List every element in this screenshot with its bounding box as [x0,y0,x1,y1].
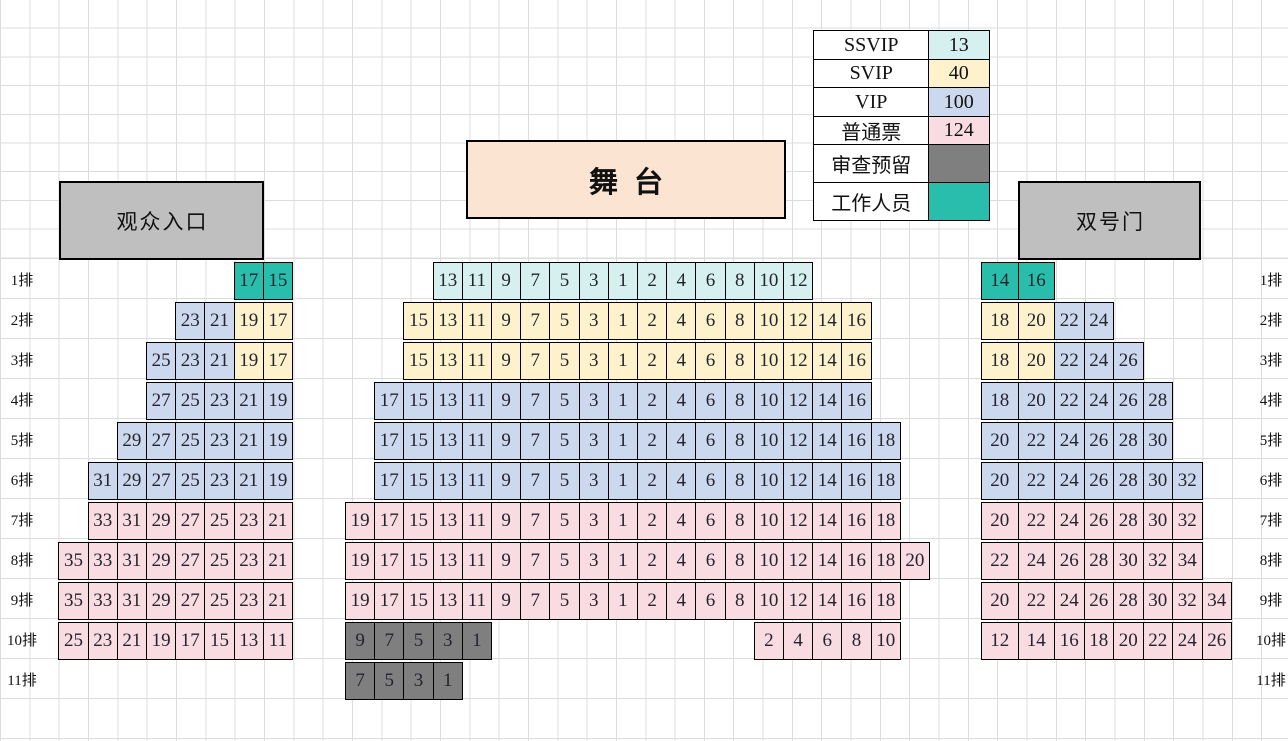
seat[interactable]: 16 [841,382,871,420]
seat[interactable]: 4 [666,342,696,380]
seat[interactable]: 17 [175,622,205,660]
seat[interactable]: 3 [579,382,609,420]
seat[interactable]: 1 [608,302,638,340]
legend-tier-count: 40 [928,59,990,89]
seat[interactable]: 35 [58,542,88,580]
seat[interactable]: 16 [841,422,871,460]
seat[interactable]: 18 [871,462,901,500]
seat[interactable]: 22 [981,542,1019,580]
seat[interactable]: 19 [345,502,375,540]
seat[interactable]: 16 [841,502,871,540]
seat[interactable]: 5 [549,462,579,500]
seat[interactable]: 20 [981,422,1019,460]
seat[interactable]: 9 [491,382,521,420]
seat[interactable]: 29 [146,542,176,580]
seat[interactable]: 20 [1113,622,1144,660]
legend-row: 工作人员 [813,182,990,221]
seat[interactable]: 15 [403,462,433,500]
seat[interactable]: 25 [175,422,205,460]
seat[interactable]: 7 [374,622,404,660]
seat[interactable]: 31 [88,462,118,500]
seat[interactable]: 13 [234,622,264,660]
seat[interactable]: 19 [234,302,264,340]
seat[interactable]: 19 [345,542,375,580]
seat[interactable]: 9 [491,462,521,500]
seat[interactable]: 16 [1018,262,1056,300]
seat[interactable]: 14 [812,422,842,460]
seat[interactable]: 12 [783,422,813,460]
seat[interactable]: 10 [754,342,784,380]
seat[interactable]: 16 [841,542,871,580]
seat[interactable]: 25 [146,342,176,380]
seat[interactable]: 6 [695,462,725,500]
seat[interactable]: 25 [204,582,234,620]
seat[interactable]: 3 [579,302,609,340]
seat[interactable]: 22 [1018,462,1056,500]
seat[interactable]: 15 [403,542,433,580]
seat[interactable]: 29 [117,462,147,500]
seat[interactable]: 12 [783,462,813,500]
seat[interactable]: 8 [725,302,755,340]
seat[interactable]: 15 [403,502,433,540]
seat[interactable]: 10 [754,502,784,540]
seat[interactable]: 24 [1054,422,1085,460]
seat[interactable]: 2 [637,422,667,460]
seat[interactable]: 28 [1113,502,1144,540]
seat[interactable]: 11 [462,422,492,460]
seat[interactable]: 21 [234,382,264,420]
row-label: 7排 [0,502,44,540]
seat[interactable]: 20 [1018,342,1056,380]
entrance-gate: 观众入口 [59,181,264,260]
seat[interactable]: 2 [637,302,667,340]
seat[interactable]: 11 [263,622,293,660]
seat[interactable]: 16 [841,302,871,340]
seat[interactable]: 3 [579,542,609,580]
seat[interactable]: 19 [146,622,176,660]
seat[interactable]: 26 [1084,582,1115,620]
seat[interactable]: 5 [549,262,579,300]
seat[interactable]: 3 [579,342,609,380]
seat[interactable]: 30 [1113,542,1144,580]
seat[interactable]: 30 [1143,582,1174,620]
seat[interactable]: 10 [754,262,784,300]
seat[interactable]: 12 [783,302,813,340]
seat[interactable]: 3 [403,662,433,700]
seat[interactable]: 11 [462,502,492,540]
seat[interactable]: 22 [1054,302,1085,340]
seat[interactable]: 28 [1113,582,1144,620]
seat[interactable]: 17 [374,502,404,540]
seat[interactable]: 3 [579,262,609,300]
seat[interactable]: 9 [491,502,521,540]
seat[interactable]: 11 [462,342,492,380]
seat[interactable]: 25 [58,622,88,660]
legend-tier-count: 124 [928,116,990,146]
seat[interactable]: 1 [608,342,638,380]
seat[interactable]: 7 [520,382,550,420]
seat[interactable]: 29 [117,422,147,460]
seat[interactable]: 9 [491,542,521,580]
seat[interactable]: 20 [981,462,1019,500]
seat[interactable]: 9 [491,302,521,340]
seat[interactable]: 27 [146,382,176,420]
seat[interactable]: 14 [812,302,842,340]
seat[interactable]: 11 [462,582,492,620]
seat[interactable]: 25 [204,502,234,540]
seat[interactable]: 19 [263,382,293,420]
seat[interactable]: 12 [783,542,813,580]
seat[interactable]: 1 [608,582,638,620]
seat[interactable]: 4 [666,502,696,540]
seat[interactable]: 5 [549,542,579,580]
seat[interactable]: 17 [374,422,404,460]
seat[interactable]: 25 [175,462,205,500]
seat[interactable]: 2 [637,502,667,540]
seat[interactable]: 29 [146,502,176,540]
seat[interactable]: 27 [146,462,176,500]
seat[interactable]: 6 [695,342,725,380]
seat[interactable]: 24 [1018,542,1056,580]
seat[interactable]: 23 [175,342,205,380]
seat[interactable]: 26 [1084,502,1115,540]
seat[interactable]: 6 [695,262,725,300]
seat[interactable]: 26 [1054,542,1085,580]
seat[interactable]: 32 [1172,502,1203,540]
seat[interactable]: 4 [666,262,696,300]
seat[interactable]: 7 [520,462,550,500]
seat[interactable]: 24 [1054,582,1085,620]
seat[interactable]: 15 [403,302,433,340]
seat[interactable]: 3 [579,422,609,460]
seat[interactable]: 6 [695,422,725,460]
seat[interactable]: 10 [871,622,901,660]
seat[interactable]: 7 [520,542,550,580]
seat[interactable]: 23 [88,622,118,660]
seat[interactable]: 14 [981,262,1019,300]
seat[interactable]: 4 [666,302,696,340]
seat[interactable]: 17 [263,302,293,340]
seat[interactable]: 10 [754,542,784,580]
seat[interactable]: 18 [981,302,1019,340]
seat[interactable]: 4 [783,622,813,660]
seat[interactable]: 10 [754,382,784,420]
seat[interactable]: 30 [1143,502,1174,540]
seat[interactable]: 12 [981,622,1019,660]
seat[interactable]: 14 [812,462,842,500]
seat[interactable]: 9 [491,422,521,460]
seat[interactable]: 13 [433,342,463,380]
seat[interactable]: 21 [263,502,293,540]
seat[interactable]: 8 [725,342,755,380]
seat[interactable]: 10 [754,462,784,500]
seat[interactable]: 14 [812,342,842,380]
seat[interactable]: 8 [725,382,755,420]
seat[interactable]: 28 [1084,542,1115,580]
seat[interactable]: 3 [579,462,609,500]
seat[interactable]: 21 [117,622,147,660]
seat[interactable]: 3 [579,582,609,620]
seat[interactable]: 25 [175,382,205,420]
seat[interactable]: 23 [234,542,264,580]
seat[interactable]: 7 [520,502,550,540]
seat[interactable]: 16 [841,462,871,500]
seat[interactable]: 5 [549,422,579,460]
seat[interactable]: 14 [1018,622,1056,660]
seat[interactable]: 18 [981,342,1019,380]
seat[interactable]: 1 [462,622,492,660]
seat[interactable]: 26 [1084,422,1115,460]
seat[interactable]: 20 [981,502,1019,540]
seat[interactable]: 1 [608,502,638,540]
seat[interactable]: 34 [1202,582,1233,620]
seat[interactable]: 18 [981,382,1019,420]
seat[interactable]: 17 [374,382,404,420]
seat[interactable]: 5 [549,302,579,340]
seat[interactable]: 28 [1143,382,1174,420]
seat[interactable]: 22 [1018,422,1056,460]
seat[interactable]: 10 [754,422,784,460]
seat[interactable]: 22 [1143,622,1174,660]
seat[interactable]: 4 [666,422,696,460]
seat[interactable]: 9 [491,342,521,380]
seat[interactable]: 21 [263,542,293,580]
seat[interactable]: 9 [345,622,375,660]
seat[interactable]: 6 [695,542,725,580]
seat[interactable]: 8 [725,422,755,460]
seat[interactable]: 24 [1054,502,1085,540]
seat[interactable]: 21 [204,342,234,380]
seat[interactable]: 20 [900,542,930,580]
seat[interactable]: 1 [608,422,638,460]
seat[interactable]: 11 [462,542,492,580]
seat[interactable]: 4 [666,582,696,620]
seat[interactable]: 5 [549,502,579,540]
seat[interactable]: 8 [725,542,755,580]
seat[interactable]: 6 [695,502,725,540]
seat[interactable]: 24 [1084,382,1115,420]
seat[interactable]: 12 [783,262,813,300]
seat[interactable]: 7 [520,422,550,460]
seat[interactable]: 12 [783,382,813,420]
seat[interactable]: 23 [175,302,205,340]
seat[interactable]: 15 [403,582,433,620]
seat[interactable]: 23 [204,462,234,500]
seat[interactable]: 9 [491,582,521,620]
seat[interactable]: 13 [433,502,463,540]
seat[interactable]: 20 [1018,302,1056,340]
seat[interactable]: 3 [433,622,463,660]
seat[interactable]: 27 [146,422,176,460]
seat[interactable]: 33 [88,502,118,540]
seat[interactable]: 6 [812,622,842,660]
seat[interactable]: 31 [117,582,147,620]
seat[interactable]: 4 [666,542,696,580]
seat[interactable]: 26 [1113,342,1144,380]
seat[interactable]: 30 [1143,462,1174,500]
seat[interactable]: 1 [608,462,638,500]
seat[interactable]: 9 [491,262,521,300]
seat[interactable]: 19 [263,422,293,460]
seat[interactable]: 25 [204,542,234,580]
legend: SSVIP13SVIP40VIP100普通票124审查预留工作人员 [813,30,990,221]
seat[interactable]: 21 [263,582,293,620]
seat[interactable]: 23 [234,582,264,620]
seat[interactable]: 28 [1113,422,1144,460]
seat[interactable]: 14 [812,502,842,540]
seat[interactable]: 16 [841,582,871,620]
seat[interactable]: 26 [1202,622,1233,660]
seat[interactable]: 2 [637,382,667,420]
seat[interactable]: 31 [117,542,147,580]
seat[interactable]: 11 [462,462,492,500]
seat[interactable]: 35 [58,582,88,620]
seat[interactable]: 5 [549,582,579,620]
seat[interactable]: 1 [608,382,638,420]
seat[interactable]: 2 [637,542,667,580]
seat[interactable]: 17 [374,542,404,580]
seat[interactable]: 34 [1172,542,1203,580]
seat[interactable]: 22 [1018,502,1056,540]
seat[interactable]: 1 [608,542,638,580]
seat[interactable]: 24 [1054,462,1085,500]
seat[interactable]: 12 [783,582,813,620]
seat[interactable]: 12 [783,502,813,540]
seat[interactable]: 8 [725,502,755,540]
seat[interactable]: 23 [204,422,234,460]
seat[interactable]: 33 [88,542,118,580]
seat[interactable]: 8 [725,262,755,300]
seat[interactable]: 17 [374,582,404,620]
seat[interactable]: 21 [234,422,264,460]
seat[interactable]: 1 [608,262,638,300]
seat[interactable]: 26 [1113,382,1144,420]
seat[interactable]: 7 [345,662,375,700]
seat[interactable]: 16 [841,342,871,380]
seat[interactable]: 10 [754,302,784,340]
seat[interactable]: 18 [871,502,901,540]
stage: 舞台 [466,140,786,219]
seat[interactable]: 6 [695,302,725,340]
seat[interactable]: 17 [234,262,264,300]
seat[interactable]: 16 [1054,622,1085,660]
seat[interactable]: 1 [433,662,463,700]
seat[interactable]: 33 [88,582,118,620]
seat[interactable]: 26 [1084,462,1115,500]
seat[interactable]: 32 [1143,542,1174,580]
seat[interactable]: 22 [1018,582,1056,620]
seat[interactable]: 11 [462,382,492,420]
seat[interactable]: 21 [234,462,264,500]
seat[interactable]: 23 [234,502,264,540]
seat[interactable]: 15 [403,382,433,420]
seat[interactable]: 22 [1054,342,1085,380]
seat[interactable]: 29 [146,582,176,620]
seat[interactable]: 18 [871,542,901,580]
seat[interactable]: 18 [871,422,901,460]
seat[interactable]: 14 [812,542,842,580]
seat[interactable]: 7 [520,262,550,300]
row-label: 2排 [0,302,44,340]
seat[interactable]: 2 [754,622,784,660]
seat[interactable]: 18 [871,582,901,620]
seat[interactable]: 2 [637,342,667,380]
seat[interactable]: 15 [263,262,293,300]
seat[interactable]: 7 [520,342,550,380]
seat[interactable]: 12 [783,342,813,380]
seat[interactable]: 7 [520,302,550,340]
seat[interactable]: 13 [433,422,463,460]
seat[interactable]: 3 [579,502,609,540]
seat[interactable]: 18 [1084,622,1115,660]
seat[interactable]: 13 [433,542,463,580]
seat[interactable]: 2 [637,582,667,620]
seat[interactable]: 30 [1143,422,1174,460]
seat[interactable]: 4 [666,382,696,420]
seat[interactable]: 13 [433,582,463,620]
seat[interactable]: 27 [175,502,205,540]
seat[interactable]: 15 [403,422,433,460]
seat[interactable]: 2 [637,462,667,500]
seat[interactable]: 23 [204,382,234,420]
seat[interactable]: 24 [1084,342,1115,380]
seat[interactable]: 6 [695,382,725,420]
seat[interactable]: 13 [433,382,463,420]
seat[interactable]: 17 [263,342,293,380]
seat[interactable]: 7 [520,582,550,620]
seat[interactable]: 19 [345,582,375,620]
seat[interactable]: 15 [204,622,234,660]
row-label: 3排 [1249,342,1288,380]
seat[interactable]: 32 [1172,582,1203,620]
seat[interactable]: 14 [812,582,842,620]
seat[interactable]: 8 [841,622,871,660]
seat[interactable]: 28 [1113,462,1144,500]
seat[interactable]: 5 [403,622,433,660]
seat[interactable]: 22 [1054,382,1085,420]
seat[interactable]: 19 [263,462,293,500]
seat[interactable]: 15 [403,342,433,380]
seat[interactable]: 5 [549,342,579,380]
seat[interactable]: 13 [433,262,463,300]
seat[interactable]: 13 [433,462,463,500]
seat[interactable]: 8 [725,462,755,500]
seat[interactable]: 27 [175,582,205,620]
seat[interactable]: 24 [1172,622,1203,660]
seat[interactable]: 17 [374,462,404,500]
seat[interactable]: 27 [175,542,205,580]
seat[interactable]: 8 [725,582,755,620]
seat[interactable]: 5 [549,382,579,420]
seat[interactable]: 20 [981,582,1019,620]
row-label: 4排 [1249,382,1288,420]
seat[interactable]: 24 [1084,302,1115,340]
seat[interactable]: 32 [1172,462,1203,500]
seat[interactable]: 10 [754,582,784,620]
seat[interactable]: 6 [695,582,725,620]
seat[interactable]: 2 [637,262,667,300]
seat[interactable]: 11 [462,262,492,300]
seat[interactable]: 20 [1018,382,1056,420]
seat[interactable]: 21 [204,302,234,340]
seat[interactable]: 31 [117,502,147,540]
seat[interactable]: 14 [812,382,842,420]
seat[interactable]: 19 [234,342,264,380]
seat[interactable]: 11 [462,302,492,340]
seat[interactable]: 5 [374,662,404,700]
seat[interactable]: 4 [666,462,696,500]
seat[interactable]: 13 [433,302,463,340]
